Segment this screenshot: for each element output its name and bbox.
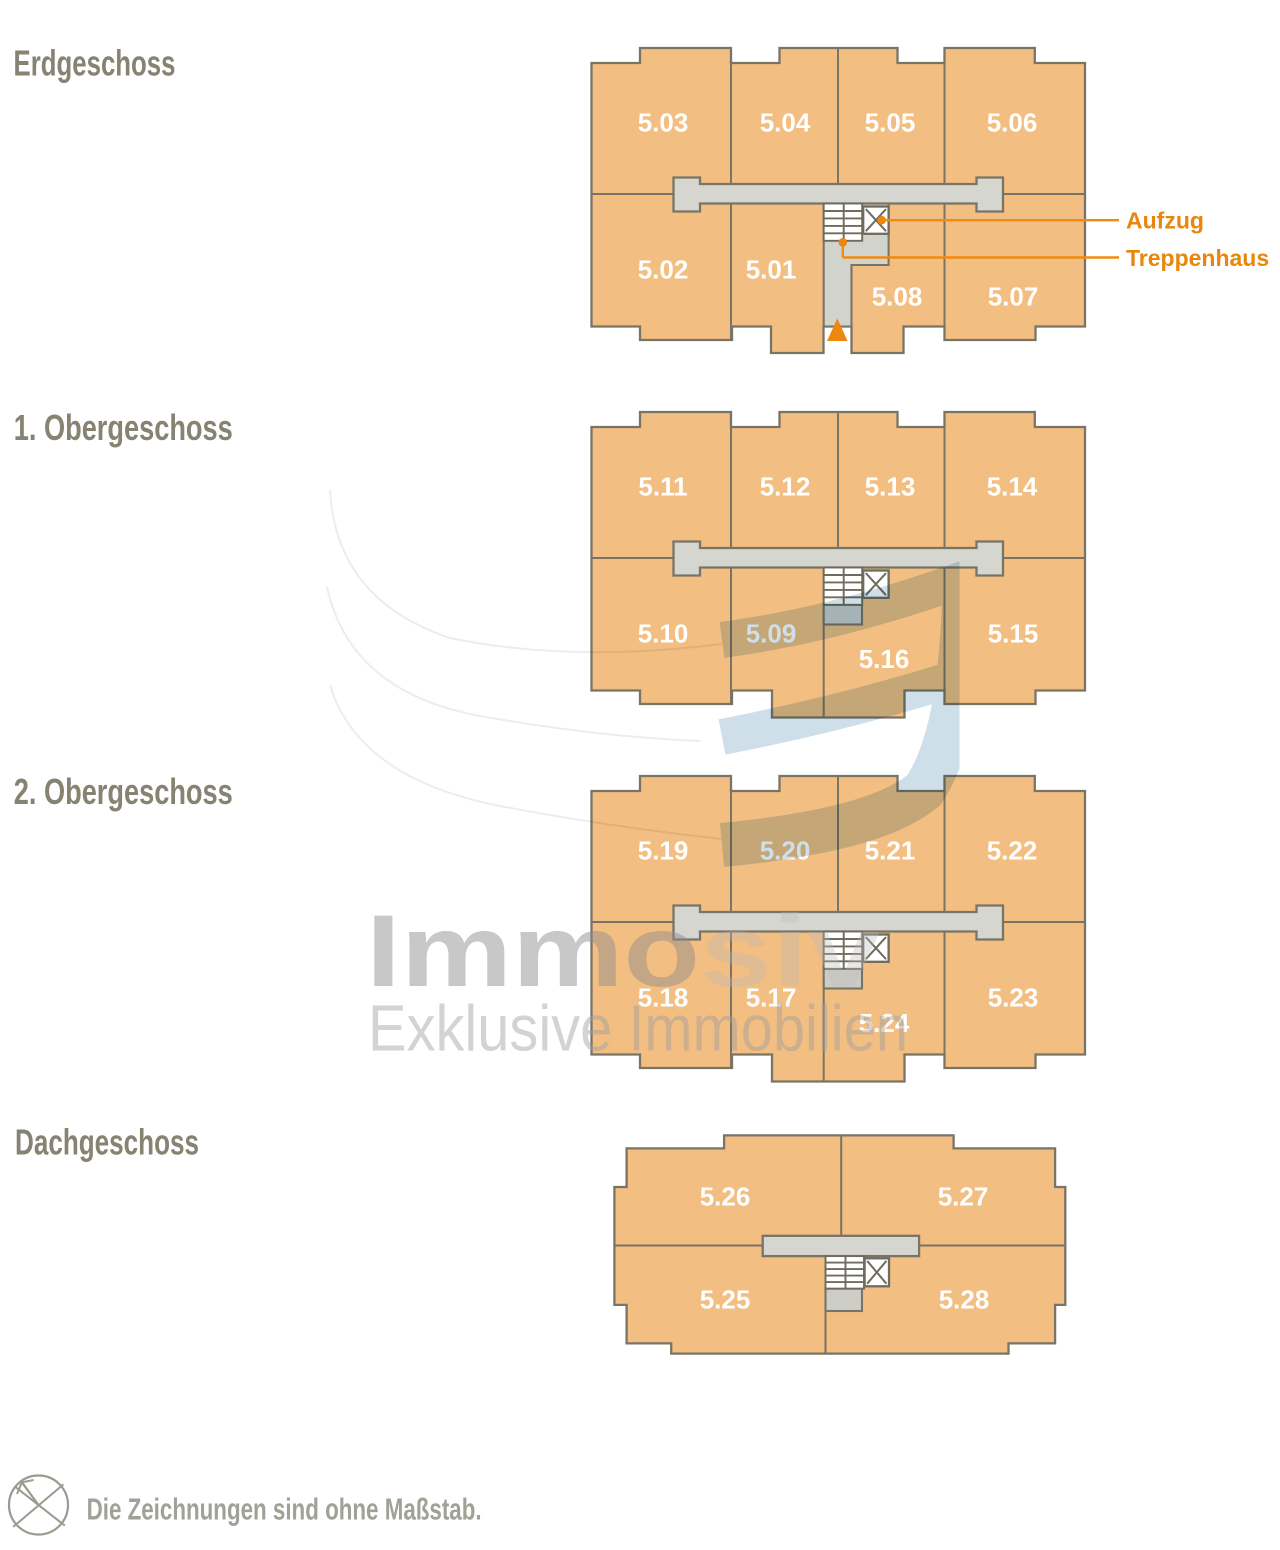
- svg-text:Exklusive Immobilien: Exklusive Immobilien: [368, 992, 908, 1065]
- svg-text:5.22: 5.22: [987, 836, 1038, 866]
- svg-text:5.12: 5.12: [760, 472, 811, 502]
- svg-text:5.08: 5.08: [872, 282, 923, 312]
- svg-text:5.13: 5.13: [865, 472, 916, 502]
- svg-text:5.14: 5.14: [987, 472, 1038, 502]
- svg-text:5.19: 5.19: [638, 836, 689, 866]
- svg-text:Aufzug: Aufzug: [1126, 208, 1204, 234]
- svg-text:5.27: 5.27: [938, 1182, 989, 1212]
- svg-text:5.15: 5.15: [988, 619, 1039, 649]
- svg-text:5.25: 5.25: [700, 1285, 751, 1315]
- svg-text:1. Obergeschoss: 1. Obergeschoss: [14, 407, 233, 448]
- svg-text:5.26: 5.26: [700, 1182, 751, 1212]
- svg-text:5.05: 5.05: [865, 108, 916, 138]
- svg-text:5.11: 5.11: [638, 472, 687, 502]
- svg-text:Treppenhaus: Treppenhaus: [1126, 245, 1269, 271]
- svg-text:Erdgeschoss: Erdgeschoss: [14, 43, 176, 84]
- svg-text:5.28: 5.28: [939, 1285, 990, 1315]
- svg-text:5.10: 5.10: [638, 619, 689, 649]
- svg-text:5.06: 5.06: [987, 108, 1038, 138]
- svg-text:Dachgeschoss: Dachgeschoss: [15, 1122, 199, 1163]
- svg-text:5.23: 5.23: [988, 983, 1039, 1013]
- svg-text:5.07: 5.07: [988, 282, 1039, 312]
- svg-text:5.01: 5.01: [746, 255, 797, 285]
- svg-text:5.04: 5.04: [760, 108, 811, 138]
- svg-text:Die Zeichnungen sind ohne Maßs: Die Zeichnungen sind ohne Maßstab.: [87, 1492, 482, 1527]
- svg-text:2. Obergeschoss: 2. Obergeschoss: [14, 771, 233, 812]
- svg-text:5.03: 5.03: [638, 108, 689, 138]
- svg-text:5.16: 5.16: [859, 644, 910, 674]
- svg-text:5.02: 5.02: [638, 255, 689, 285]
